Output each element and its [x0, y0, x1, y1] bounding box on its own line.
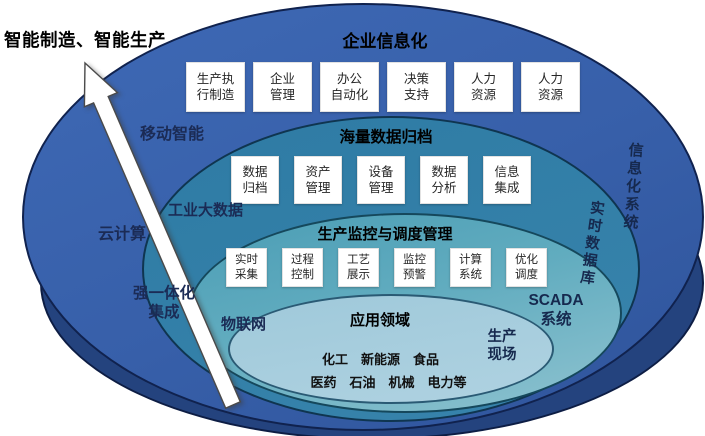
application-layer-title: 应用领域 — [280, 309, 480, 330]
monitor-layer-title: 生产监控与调度管理 — [285, 223, 485, 244]
enterprise-box: 人力 资源 — [521, 62, 580, 112]
enterprise-box-row: 生产执 行制造 企业 管理 办公 自动化 决策 支持 人力 资源 人力 资源 — [186, 62, 580, 112]
archive-box: 资产 管理 — [294, 156, 342, 204]
production-site-label: 生产 现场 — [480, 328, 524, 364]
archive-box: 设备 管理 — [357, 156, 405, 204]
monitor-box: 工艺 展示 — [338, 248, 379, 287]
enterprise-box: 生产执 行制造 — [186, 62, 245, 112]
monitor-box: 实时 采集 — [226, 248, 267, 287]
archive-box: 数据 归档 — [231, 156, 279, 204]
smart-manufacturing-label: 智能制造、智能生产 — [4, 27, 166, 52]
integration-label: 强一体化 集成 — [128, 285, 200, 322]
industries-line-1: 化工 新能源 食品 — [298, 349, 463, 368]
scada-system-label: SCADA 系统 — [520, 292, 592, 329]
monitor-box-row: 实时 采集 过程 控制 工艺 展示 监控 预警 计算 系统 优化 调度 — [226, 248, 547, 287]
industrial-bigdata-label: 工业大数据 — [168, 199, 243, 220]
enterprise-box: 企业 管理 — [253, 62, 312, 112]
enterprise-box: 办公 自动化 — [320, 62, 379, 112]
mobile-intelligence-label: 移动智能 — [140, 120, 204, 144]
archive-box: 数据 分析 — [420, 156, 468, 204]
monitor-box: 监控 预警 — [394, 248, 435, 287]
cloud-computing-label: 云计算 — [98, 220, 146, 244]
enterprise-box: 人力 资源 — [454, 62, 513, 112]
monitor-box: 计算 系统 — [450, 248, 491, 287]
industries-line-2: 医药 石油 机械 电力等 — [296, 372, 481, 391]
diagram-container: 智能制造、智能生产 企业信息化 海量数据归档 生产监控与调度管理 应用领域 生产… — [0, 0, 705, 436]
archive-layer-title: 海量数据归档 — [286, 125, 486, 147]
monitor-box: 过程 控制 — [282, 248, 323, 287]
enterprise-box: 决策 支持 — [387, 62, 446, 112]
archive-box: 信息 集成 — [483, 156, 531, 204]
archive-box-row: 数据 归档 资产 管理 设备 管理 数据 分析 信息 集成 — [231, 156, 531, 204]
iot-label: 物联网 — [221, 313, 266, 334]
enterprise-layer-title: 企业信息化 — [285, 27, 485, 52]
monitor-box: 优化 调度 — [506, 248, 547, 287]
